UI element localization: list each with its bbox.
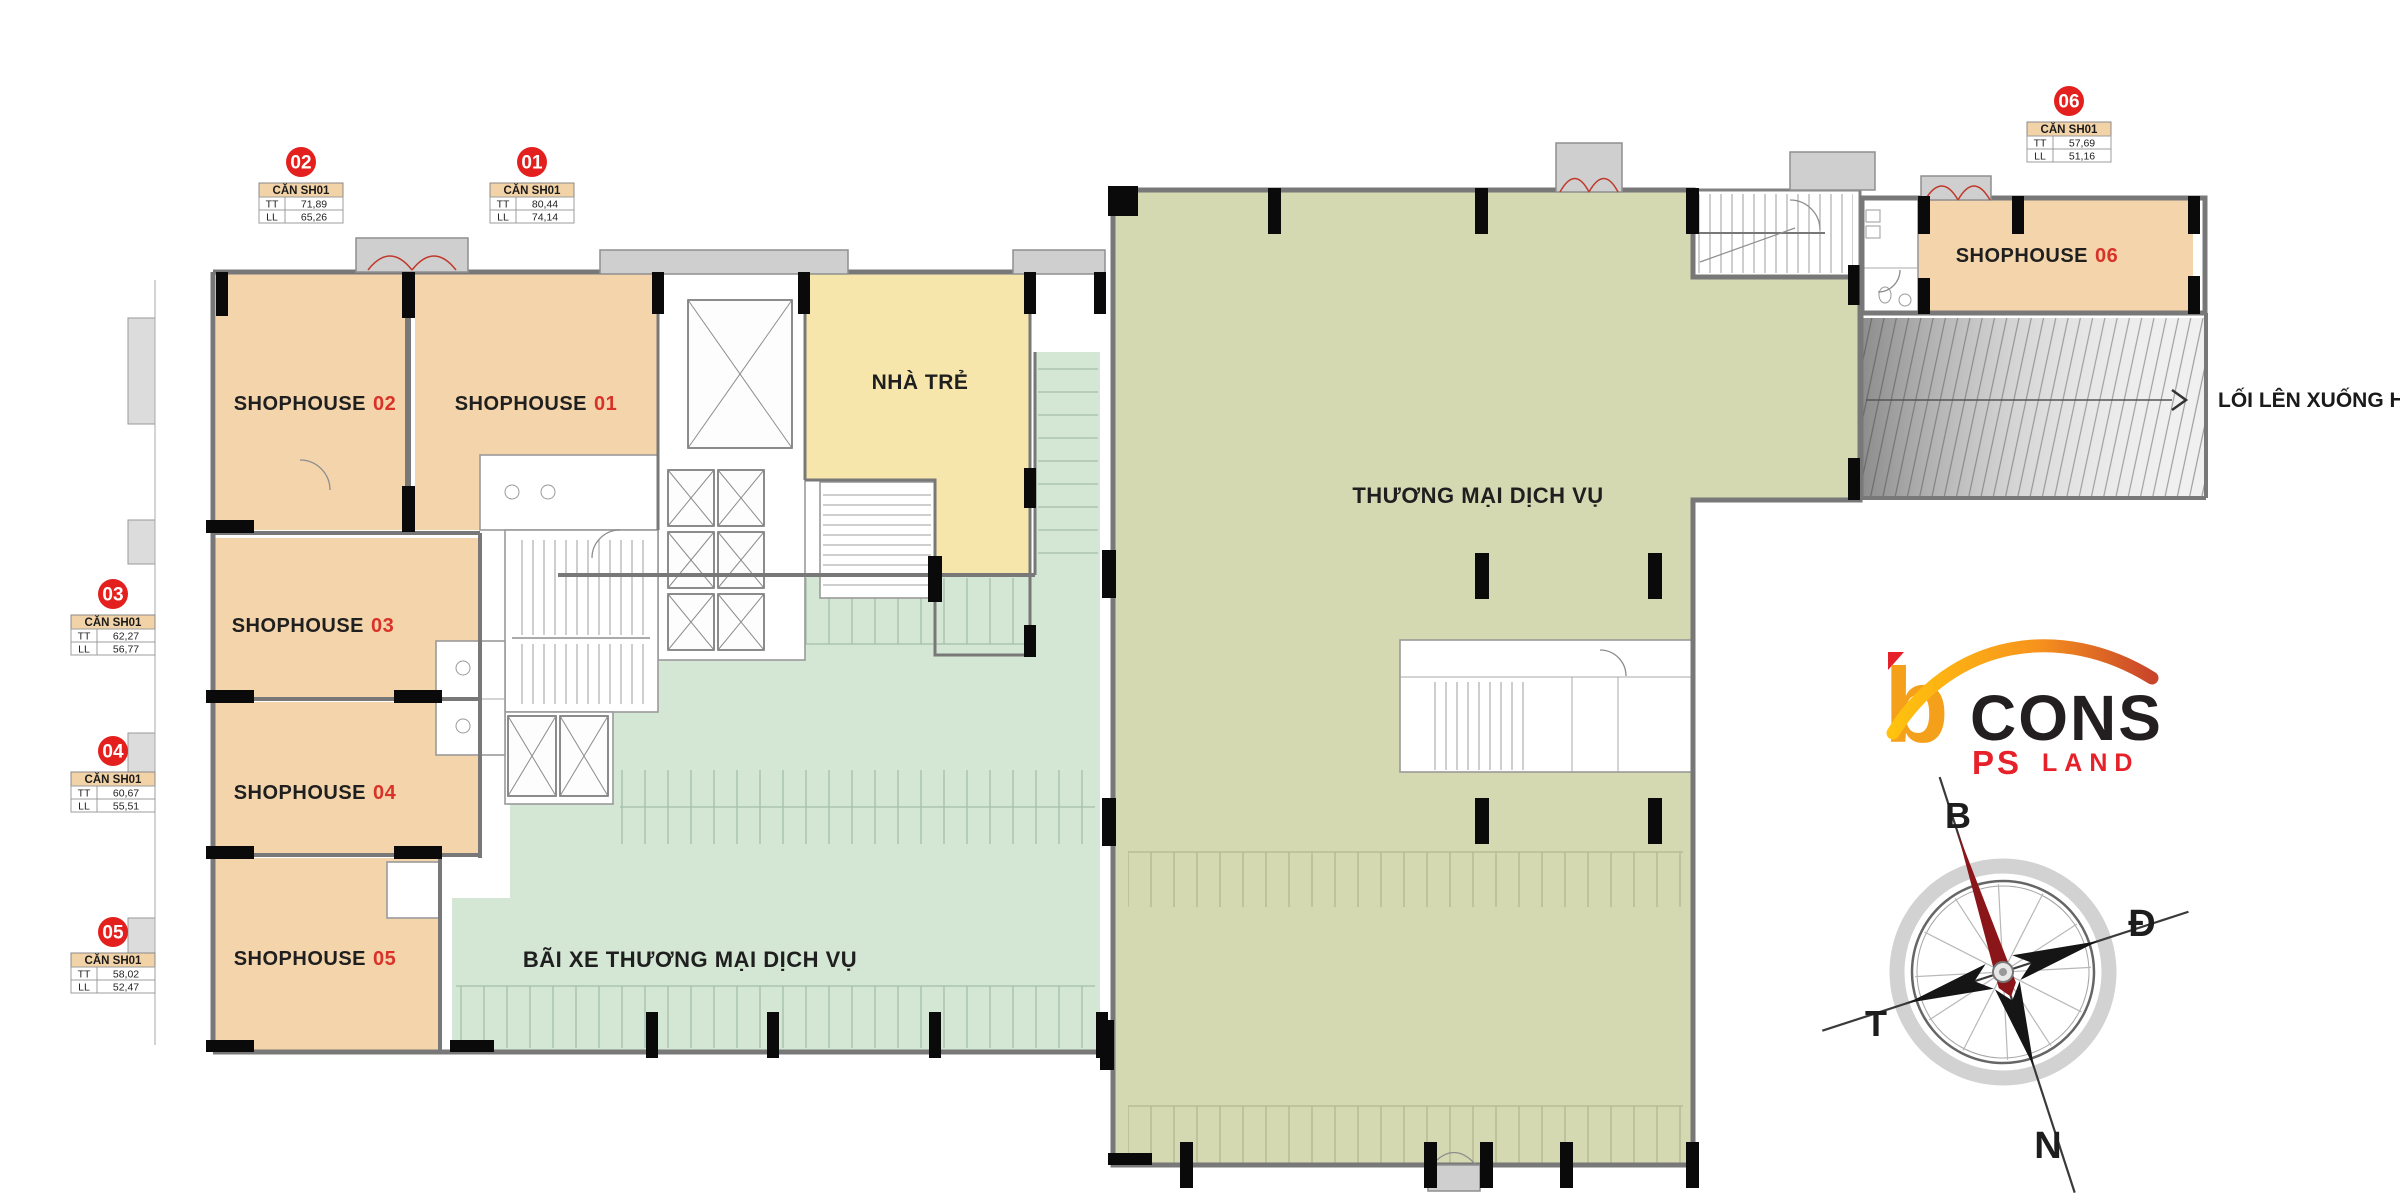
svg-text:CĂN SH01: CĂN SH01 [85, 773, 142, 786]
svg-text:TT: TT [2034, 138, 2047, 150]
entrance-canopies [356, 238, 1105, 274]
unit-card-06: 06 CĂN SH01 TT 57,69 LL 51,16 [2027, 86, 2111, 163]
facade-ledges [128, 280, 155, 1045]
svg-text:74,14: 74,14 [532, 212, 558, 224]
floor-plan-page: LỐI LÊN XUỐNG HẦM SHOPHOUSE02 SHOPHOUSE0… [0, 0, 2400, 1202]
compass-west-label: T [1865, 1003, 1887, 1044]
unit-card-01: 01 CĂN SH01 TT 80,44 LL 74,14 [490, 147, 574, 224]
compass-rose-icon [1759, 717, 2260, 1202]
svg-text:CĂN SH01: CĂN SH01 [85, 616, 142, 629]
svg-text:03: 03 [102, 585, 123, 606]
svg-text:TT: TT [78, 631, 91, 643]
daycare-label: NHÀ TRẺ [872, 371, 969, 394]
floor-plan: LỐI LÊN XUỐNG HẦM SHOPHOUSE02 SHOPHOUSE0… [0, 0, 2400, 1202]
svg-text:02: 02 [290, 153, 311, 174]
svg-text:LL: LL [78, 982, 90, 994]
svg-text:65,26: 65,26 [301, 212, 327, 224]
commercial-building [1100, 143, 1875, 1191]
svg-text:56,77: 56,77 [113, 644, 139, 656]
svg-text:LL: LL [78, 801, 90, 813]
unit-card-02: 02 CĂN SH01 TT 71,89 LL 65,26 [259, 147, 343, 224]
svg-text:57,69: 57,69 [2069, 138, 2095, 150]
basement-ramp [1862, 313, 2206, 498]
compass-north-label: B [1945, 795, 1971, 836]
unit-card-03: 03 CĂN SH01 TT 62,27 LL 56,77 [71, 579, 155, 656]
svg-text:TT: TT [78, 788, 91, 800]
compass-south-label: N [2034, 1125, 2061, 1167]
shophouse-04-label: SHOPHOUSE04 [234, 782, 397, 804]
commercial-label: THƯƠNG MẠI DỊCH VỤ [1352, 483, 1603, 508]
svg-text:TT: TT [78, 969, 91, 981]
parking-label: BÃI XE THƯƠNG MẠI DỊCH VỤ [523, 947, 857, 972]
svg-text:52,47: 52,47 [113, 982, 139, 994]
compass-east-label: Đ [2128, 903, 2155, 945]
svg-text:TT: TT [497, 199, 510, 211]
logo-land: LAND [2042, 749, 2139, 777]
svg-text:58,02: 58,02 [113, 969, 139, 981]
svg-text:62,27: 62,27 [113, 631, 139, 643]
commercial-top-canopy [1556, 143, 1622, 192]
svg-text:TT: TT [266, 199, 279, 211]
logo-ps: PS [1972, 744, 2022, 781]
commercial-core [1400, 640, 1693, 772]
shophouse-06-block [1862, 176, 2206, 498]
svg-text:LL: LL [497, 212, 509, 224]
svg-text:06: 06 [2058, 92, 2079, 113]
stair-block [1693, 152, 1875, 277]
svg-text:51,16: 51,16 [2069, 151, 2095, 163]
svg-text:80,44: 80,44 [532, 199, 558, 211]
svg-text:CĂN SH01: CĂN SH01 [273, 184, 330, 197]
svg-text:CĂN SH01: CĂN SH01 [85, 954, 142, 967]
svg-text:CĂN SH01: CĂN SH01 [2041, 123, 2098, 136]
compass-rose: B Đ T N [1759, 717, 2260, 1202]
left-building [128, 238, 1108, 1058]
svg-text:71,89: 71,89 [301, 199, 327, 211]
ramp-label: LỐI LÊN XUỐNG HẦM [2218, 388, 2400, 412]
svg-text:LL: LL [266, 212, 278, 224]
svg-text:01: 01 [521, 153, 543, 174]
svg-text:60,67: 60,67 [113, 788, 139, 800]
svg-text:CĂN SH01: CĂN SH01 [504, 184, 561, 197]
svg-text:05: 05 [102, 923, 124, 944]
svg-text:LL: LL [78, 644, 90, 656]
svg-text:55,51: 55,51 [113, 801, 139, 813]
svg-text:04: 04 [102, 742, 124, 763]
svg-text:LL: LL [2034, 151, 2046, 163]
bcons-logo: b CONS PS LAND [1884, 646, 2163, 781]
